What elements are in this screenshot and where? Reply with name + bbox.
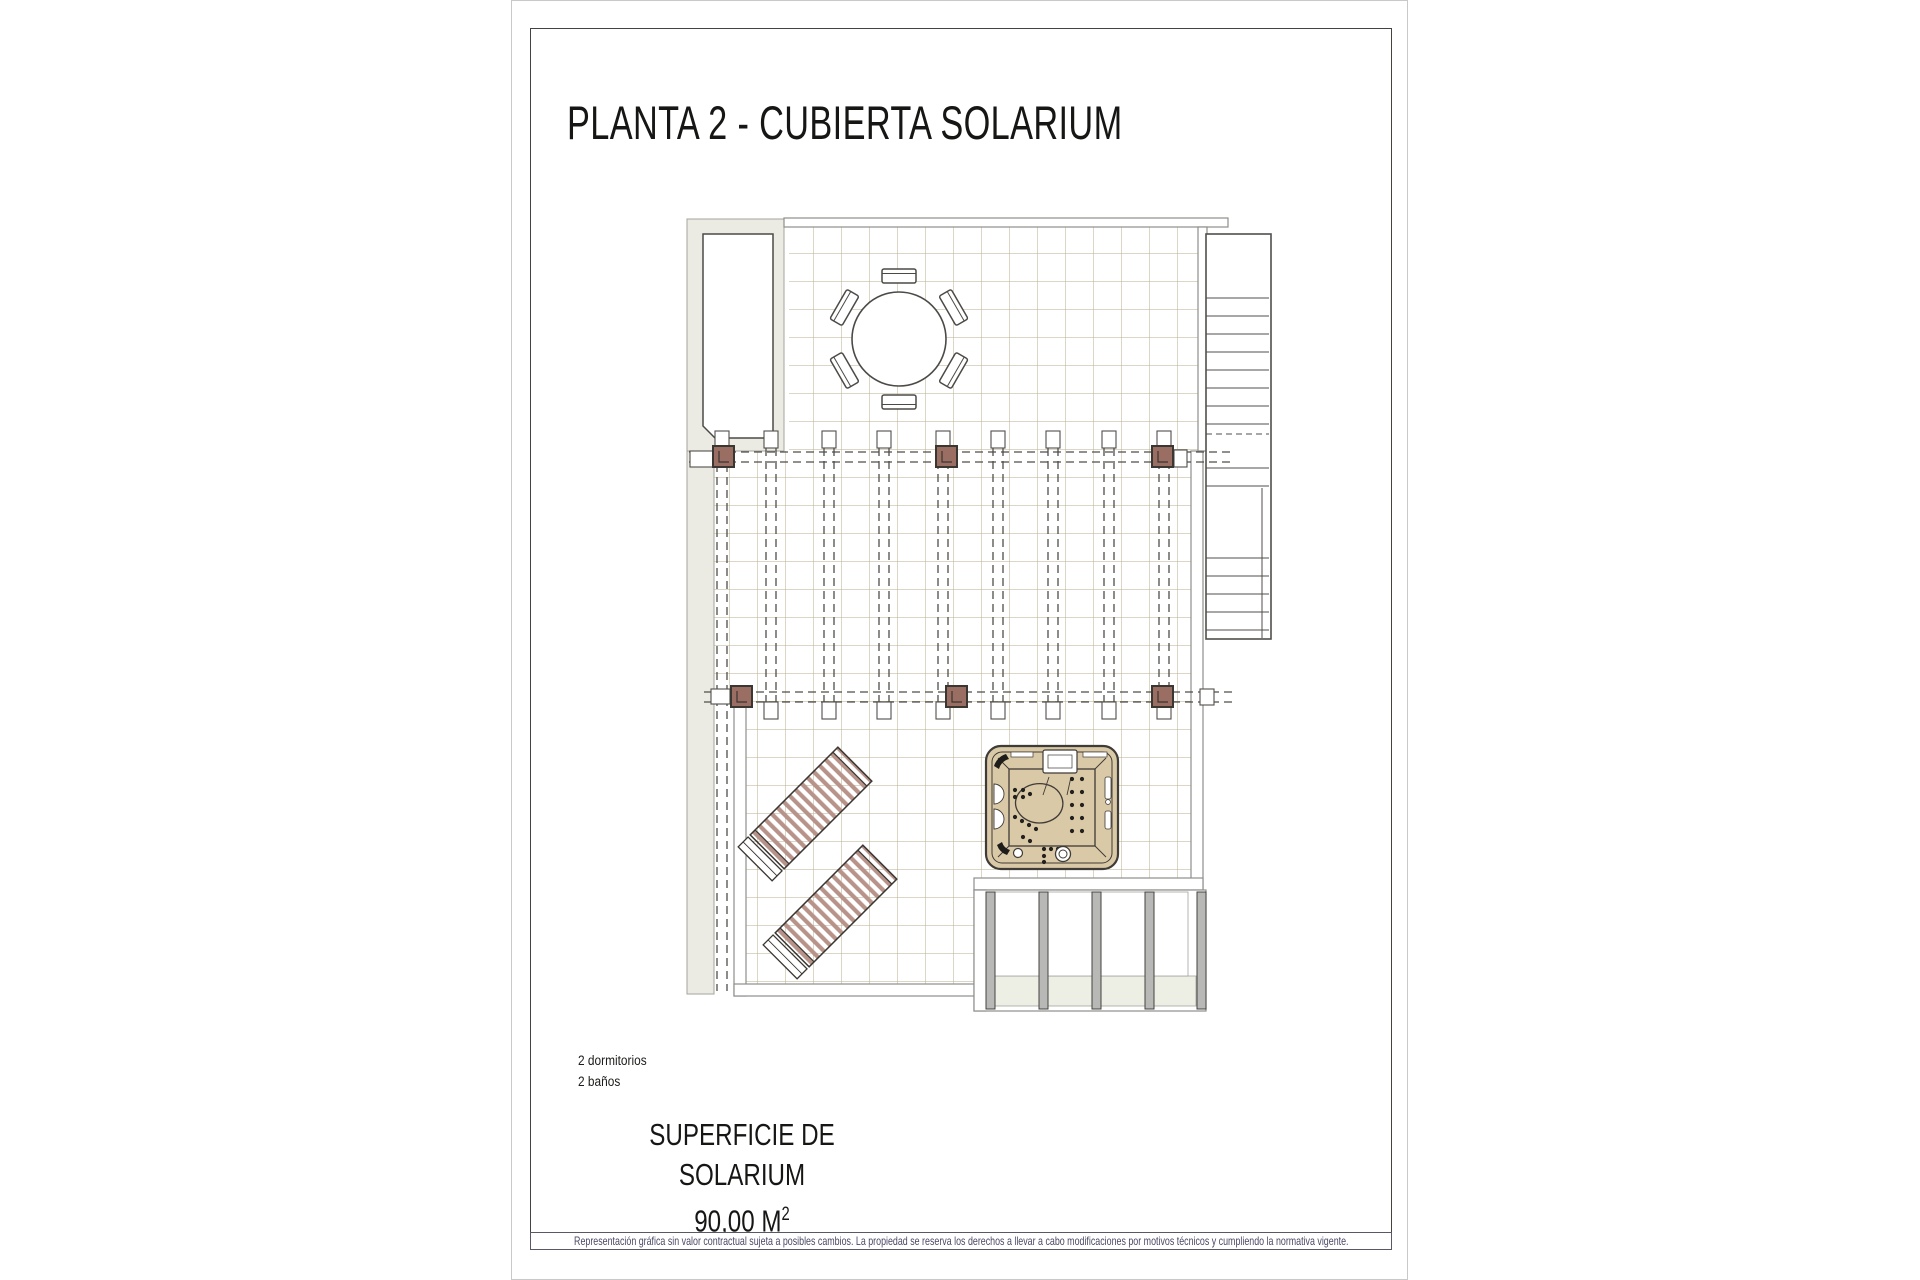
unit-details: 2 dormitorios 2 baños: [578, 1050, 647, 1092]
page-title: PLANTA 2 - CUBIERTA SOLARIUM: [567, 95, 1123, 150]
surface-block: SUPERFICIE DE SOLARIUM 90,00 M2: [594, 1115, 890, 1241]
bottom-right-wall: [974, 878, 1203, 890]
bottom-left-wall: [734, 984, 986, 996]
disclaimer-bar: Representación gráfica sin valor contrac…: [530, 1232, 1392, 1250]
floor-plan: [681, 211, 1291, 1021]
surface-label: SUPERFICIE DE SOLARIUM: [594, 1115, 890, 1195]
plan-page: PLANTA 2 - CUBIERTA SOLARIUM: [511, 0, 1408, 1280]
bathrooms-label: 2 baños: [578, 1071, 647, 1092]
hot-tub: [986, 746, 1118, 869]
rooftop-tiles: [714, 225, 1203, 984]
round-table: [852, 292, 946, 386]
bedrooms-label: 2 dormitorios: [578, 1050, 647, 1071]
screenshot-stage: PLANTA 2 - CUBIERTA SOLARIUM: [0, 0, 1920, 1280]
pergola-post: [731, 686, 752, 707]
lower-porch: [974, 890, 1206, 1011]
stairs: [1206, 234, 1271, 639]
right-terrace-wall: [1191, 451, 1203, 890]
pergola-post: [1152, 686, 1173, 707]
upper-terrace-tiles: [789, 225, 1203, 451]
pergola-post: [946, 686, 967, 707]
disclaimer-text: Representación gráfica sin valor contrac…: [574, 1234, 1348, 1248]
pergola-tiles: [714, 451, 1203, 691]
top-wall: [784, 218, 1228, 227]
pergola-post: [713, 446, 734, 467]
pergola-post: [936, 446, 957, 467]
stairwell-opening: [703, 234, 773, 438]
pergola-post: [1152, 446, 1173, 467]
